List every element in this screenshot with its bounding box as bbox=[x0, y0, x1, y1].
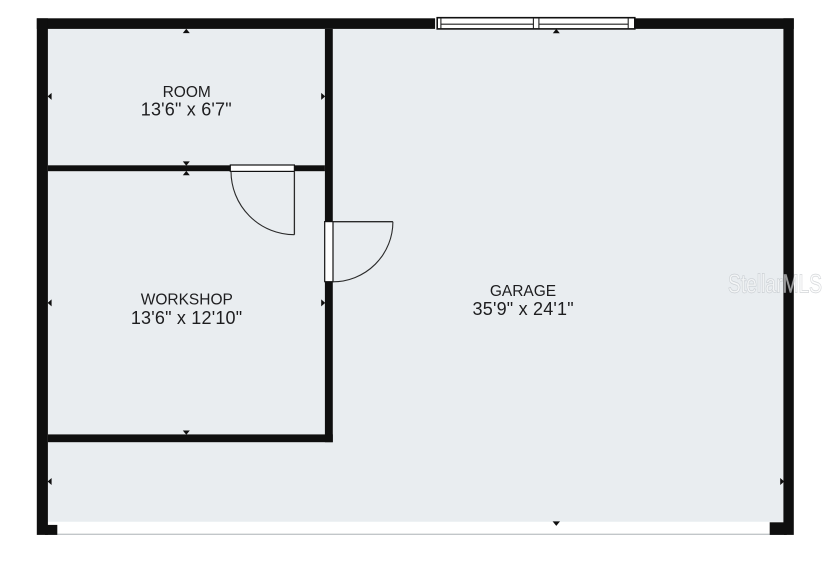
svg-text:13'6" x 6'7": 13'6" x 6'7" bbox=[141, 100, 232, 120]
svg-text:ROOM: ROOM bbox=[163, 84, 211, 101]
svg-text:GARAGE: GARAGE bbox=[490, 283, 556, 300]
svg-text:13'6" x 12'10": 13'6" x 12'10" bbox=[131, 308, 243, 328]
svg-text:WORKSHOP: WORKSHOP bbox=[141, 292, 233, 309]
svg-text:35'9" x 24'1": 35'9" x 24'1" bbox=[473, 299, 574, 319]
svg-text:StellarMLS: StellarMLS bbox=[728, 268, 822, 298]
